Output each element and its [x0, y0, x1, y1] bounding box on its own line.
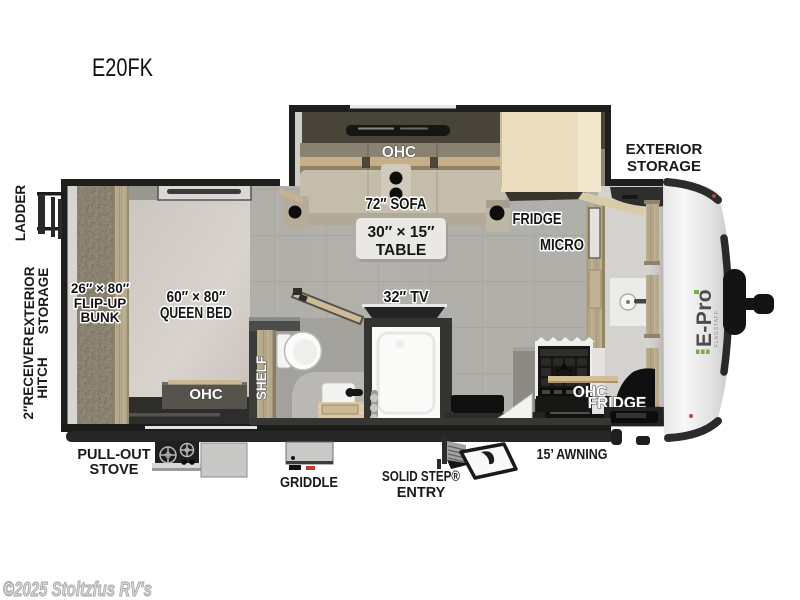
svg-text:30″ × 15″: 30″ × 15″ — [368, 224, 436, 241]
svg-text:26″ × 80″: 26″ × 80″ — [71, 281, 130, 296]
svg-text:QUEEN BED: QUEEN BED — [160, 305, 232, 322]
svg-text:PULL-OUT: PULL-OUT — [77, 447, 150, 463]
svg-text:60″ × 80″: 60″ × 80″ — [167, 289, 227, 306]
svg-text:72″ SOFA: 72″ SOFA — [366, 196, 427, 213]
svg-text:32″ TV: 32″ TV — [384, 289, 430, 306]
svg-text:STORAGE: STORAGE — [627, 158, 701, 175]
svg-text:SHELF: SHELF — [254, 356, 269, 400]
svg-text:STORAGE: STORAGE — [36, 268, 51, 335]
svg-text:LADDER: LADDER — [13, 185, 28, 241]
svg-text:GRIDDLE: GRIDDLE — [280, 475, 338, 491]
svg-text:SOLID STEP®: SOLID STEP® — [382, 469, 460, 485]
svg-text:2″RECEIVER: 2″RECEIVER — [21, 336, 36, 419]
svg-text:FRIDGE: FRIDGE — [513, 211, 562, 228]
svg-text:E-Pro: E-Pro — [693, 289, 716, 347]
svg-text:ENTRY: ENTRY — [397, 485, 446, 501]
svg-text:MICRO: MICRO — [540, 237, 584, 254]
svg-text:FLAGSTAFF: FLAGSTAFF — [714, 310, 720, 347]
svg-text:OHC: OHC — [189, 386, 223, 403]
svg-text:FLIP-UP: FLIP-UP — [74, 296, 127, 311]
svg-text:STOVE: STOVE — [90, 462, 139, 478]
svg-text:EXTERIOR: EXTERIOR — [626, 141, 703, 158]
svg-text:TABLE: TABLE — [376, 242, 427, 259]
svg-text:EXTERIOR: EXTERIOR — [22, 266, 37, 335]
svg-text:OHC: OHC — [382, 144, 416, 161]
svg-text:E20FK: E20FK — [92, 54, 153, 82]
svg-text:BUNK: BUNK — [81, 310, 120, 325]
svg-text:©2025 Stoltzfus RV's: ©2025 Stoltzfus RV's — [3, 579, 152, 600]
svg-text:15’ AWNING: 15’ AWNING — [537, 446, 608, 463]
svg-text:HITCH: HITCH — [35, 357, 50, 398]
